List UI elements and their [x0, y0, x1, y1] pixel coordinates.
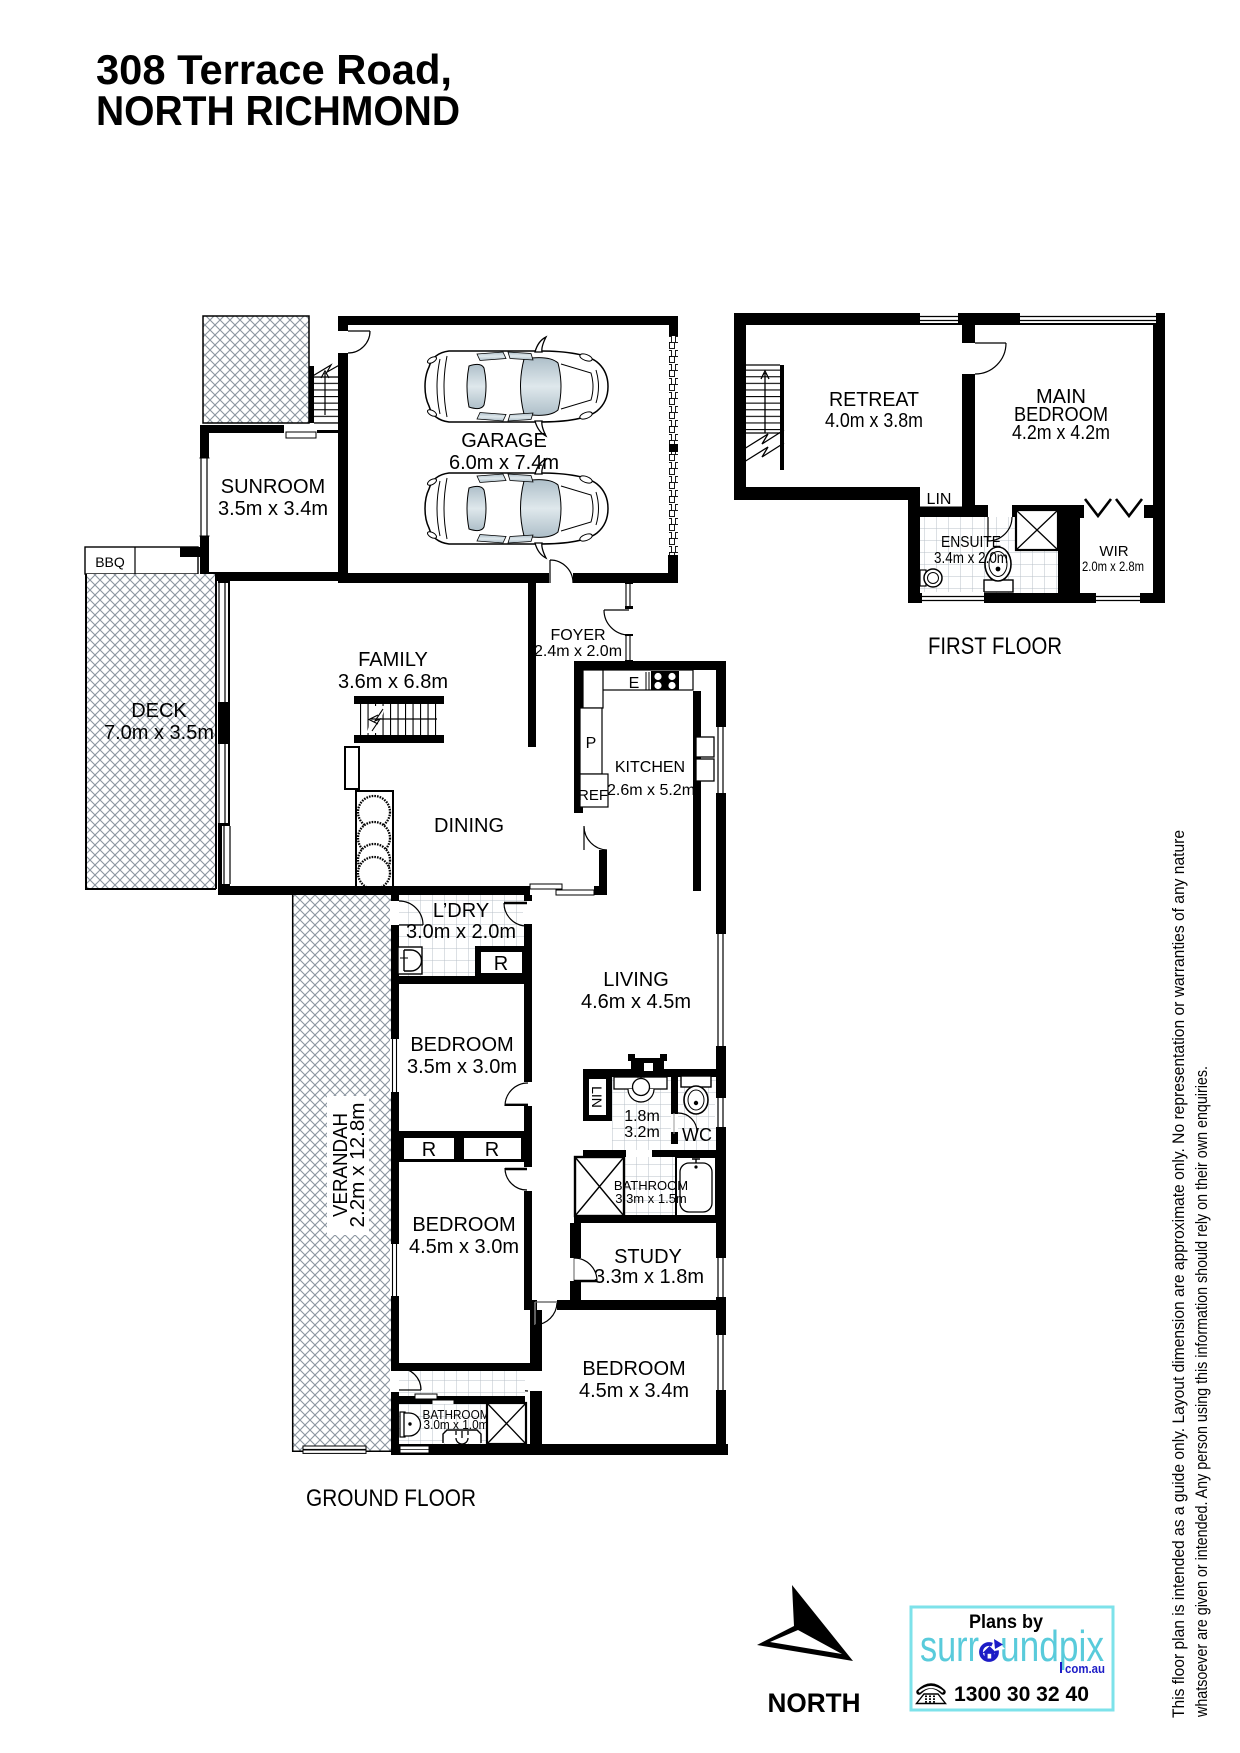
- svg-text:4.6m x 4.5m: 4.6m x 4.5m: [581, 991, 691, 1013]
- svg-text:2.2m x 12.8m: 2.2m x 12.8m: [347, 1103, 369, 1228]
- svg-text:LIVING: LIVING: [603, 969, 669, 991]
- svg-text:DECK: DECK: [131, 700, 187, 722]
- svg-text:WIR: WIR: [1099, 543, 1128, 560]
- svg-text:BEDROOM: BEDROOM: [412, 1214, 515, 1236]
- svg-text:ENSUITE: ENSUITE: [941, 534, 1001, 551]
- svg-text:surr: surr: [920, 1622, 979, 1671]
- svg-text:SUNROOM: SUNROOM: [221, 476, 325, 498]
- svg-text:4.5m x 3.4m: 4.5m x 3.4m: [579, 1380, 689, 1402]
- svg-text:3.0m x 2.0m: 3.0m x 2.0m: [406, 921, 516, 943]
- svg-text:RETREAT: RETREAT: [829, 389, 919, 411]
- svg-text:BEDROOM: BEDROOM: [582, 1358, 685, 1380]
- svg-text:FIRST FLOOR: FIRST FLOOR: [928, 633, 1062, 660]
- svg-text:DINING: DINING: [434, 815, 504, 837]
- svg-text:L’DRY: L’DRY: [433, 900, 489, 922]
- svg-text:KITCHEN: KITCHEN: [615, 759, 685, 776]
- svg-text:4.2m x 4.2m: 4.2m x 4.2m: [1012, 422, 1110, 444]
- svg-text:3.6m x 6.8m: 3.6m x 6.8m: [338, 671, 448, 693]
- svg-text:FOYER: FOYER: [550, 627, 605, 644]
- svg-text:1.8m: 1.8m: [624, 1108, 660, 1125]
- svg-text:3.5m x 3.4m: 3.5m x 3.4m: [218, 498, 328, 520]
- svg-text:NORTH: NORTH: [768, 1688, 861, 1718]
- svg-text:4.0m x 3.8m: 4.0m x 3.8m: [825, 410, 923, 432]
- svg-text:R: R: [485, 1139, 499, 1161]
- svg-text:P: P: [586, 735, 597, 752]
- svg-text:2.0m x 2.8m: 2.0m x 2.8m: [1082, 559, 1144, 574]
- svg-text:3.5m x 3.0m: 3.5m x 3.0m: [407, 1056, 517, 1078]
- svg-text:2.6m x 5.2m: 2.6m x 5.2m: [607, 782, 695, 799]
- svg-text:3.2m: 3.2m: [624, 1124, 660, 1141]
- svg-text:REF: REF: [578, 787, 608, 804]
- svg-text:LIN: LIN: [589, 1086, 605, 1108]
- svg-text:This floor plan is intended as: This floor plan is intended as a guide o…: [1169, 830, 1188, 1718]
- svg-text:308 Terrace Road,: 308 Terrace Road,: [96, 46, 452, 93]
- svg-text:3.3m x 1.5m: 3.3m x 1.5m: [615, 1191, 687, 1206]
- svg-text:whatsoever are given or intend: whatsoever are given or intended. Any pe…: [1192, 1066, 1211, 1718]
- svg-text:R: R: [494, 953, 508, 975]
- svg-text:BBQ: BBQ: [95, 554, 125, 570]
- svg-text:LIN: LIN: [927, 491, 952, 508]
- svg-text:1300 30 32 40: 1300 30 32 40: [954, 1683, 1089, 1706]
- svg-text:WC: WC: [682, 1125, 712, 1145]
- svg-text:3.4m x 2.0m: 3.4m x 2.0m: [934, 550, 1008, 567]
- svg-text:NORTH RICHMOND: NORTH RICHMOND: [96, 87, 460, 134]
- svg-text:4.5m x 3.0m: 4.5m x 3.0m: [409, 1236, 519, 1258]
- svg-text:GARAGE: GARAGE: [461, 430, 547, 452]
- svg-text:3.3m x 1.8m: 3.3m x 1.8m: [594, 1266, 704, 1288]
- svg-text:6.0m x 7.4m: 6.0m x 7.4m: [449, 452, 559, 474]
- svg-text:2.4m x 2.0m: 2.4m x 2.0m: [534, 643, 622, 660]
- svg-text:GROUND FLOOR: GROUND FLOOR: [306, 1485, 476, 1512]
- svg-text:BEDROOM: BEDROOM: [410, 1034, 513, 1056]
- svg-text:FAMILY: FAMILY: [358, 649, 428, 671]
- svg-text:R: R: [422, 1139, 436, 1161]
- svg-text:STUDY: STUDY: [614, 1246, 682, 1268]
- svg-text:E: E: [629, 675, 640, 692]
- svg-text:com.au: com.au: [1065, 1661, 1105, 1676]
- svg-text:7.0m x 3.5m: 7.0m x 3.5m: [104, 722, 214, 744]
